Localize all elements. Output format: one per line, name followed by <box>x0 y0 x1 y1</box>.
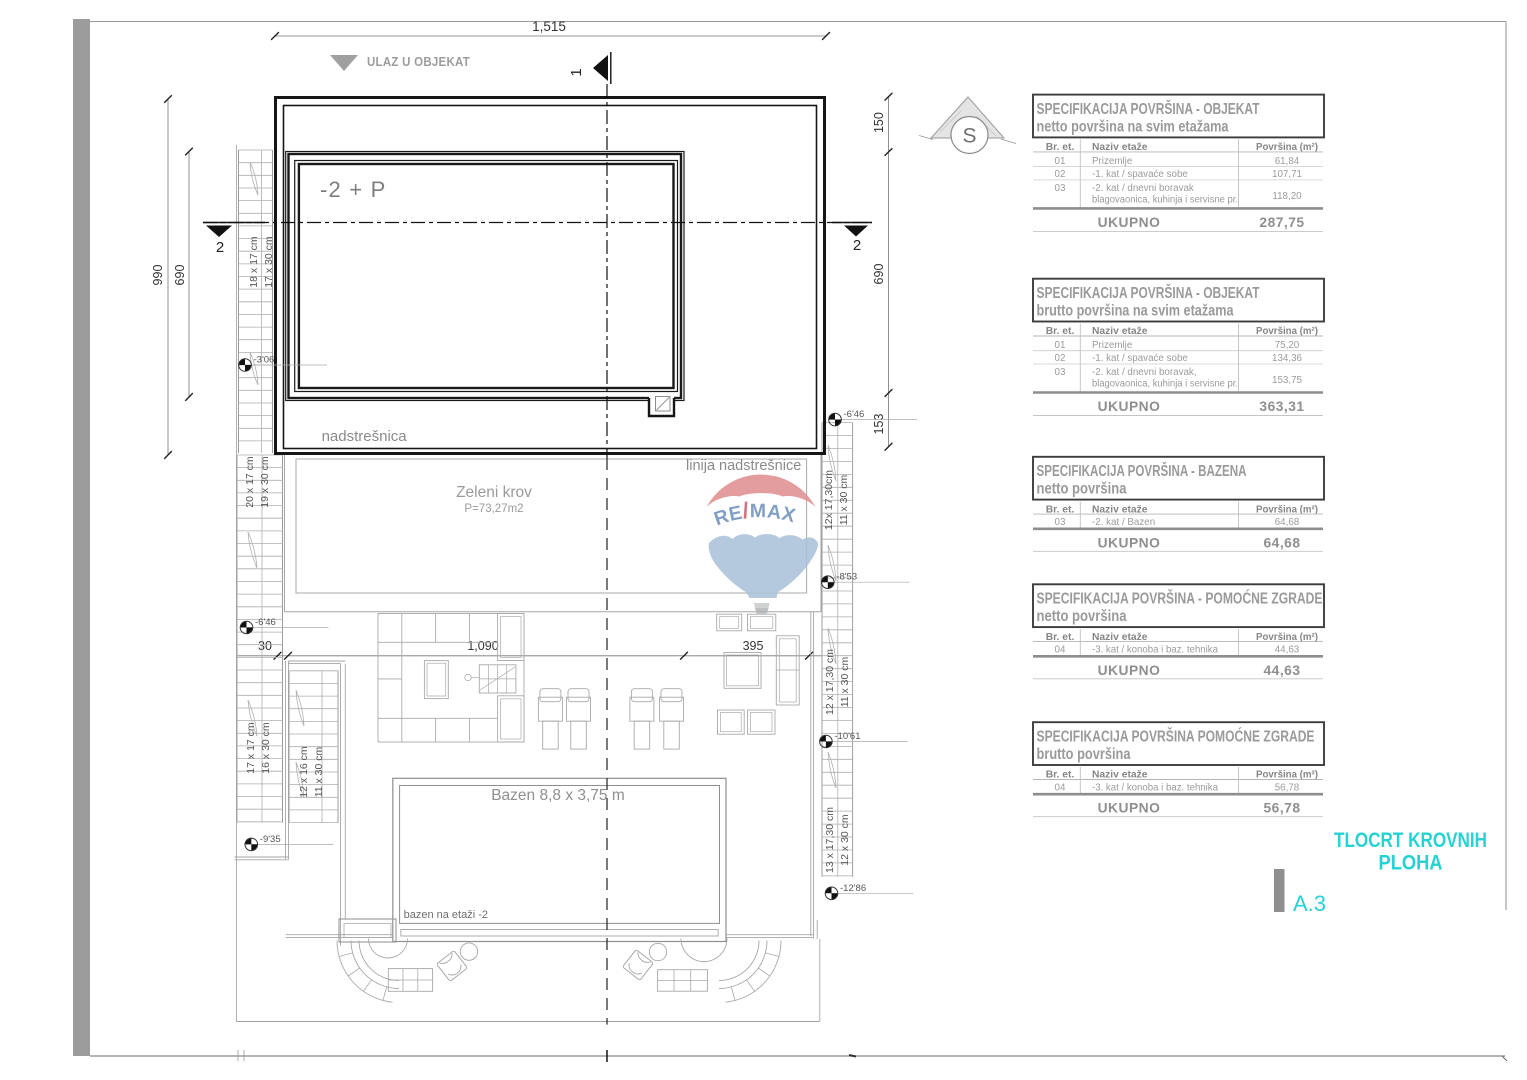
svg-text:-3'06: -3'06 <box>254 355 275 366</box>
svg-text:56,78: 56,78 <box>1275 783 1300 794</box>
svg-text:-9'35: -9'35 <box>260 834 281 845</box>
svg-text:44,63: 44,63 <box>1263 663 1300 678</box>
svg-text:blagovaonica, kuhinja i servis: blagovaonica, kuhinja i servisne pr. <box>1092 378 1238 389</box>
svg-text:17 x 17 cm: 17 x 17 cm <box>245 722 257 774</box>
svg-text:03: 03 <box>1055 367 1066 378</box>
svg-text:990: 990 <box>151 265 165 286</box>
svg-text:01: 01 <box>1055 156 1066 167</box>
svg-text:2: 2 <box>216 239 224 256</box>
svg-text:11 x 30 cm: 11 x 30 cm <box>838 474 850 525</box>
svg-text:2: 2 <box>853 237 861 254</box>
svg-text:01: 01 <box>1055 340 1066 351</box>
svg-text:netto površina: netto površina <box>1037 608 1127 625</box>
svg-text:-12'86: -12'86 <box>840 883 866 894</box>
svg-text:linija nadstrešnice: linija nadstrešnice <box>686 458 801 474</box>
svg-text:690: 690 <box>872 264 886 285</box>
svg-text:1: 1 <box>568 68 585 76</box>
svg-text:TLOCRT KROVNIH: TLOCRT KROVNIH <box>1334 829 1487 852</box>
svg-text:11 x 30 cm: 11 x 30 cm <box>313 746 325 797</box>
svg-text:1,090: 1,090 <box>467 639 498 653</box>
svg-text:56,78: 56,78 <box>1263 801 1300 816</box>
svg-text:netto površina: netto površina <box>1037 481 1127 498</box>
svg-text:-2. kat / Bazen: -2. kat / Bazen <box>1092 517 1155 528</box>
svg-text:12 x 16 cm: 12 x 16 cm <box>298 746 310 798</box>
svg-text:blagovaonica, kuhinja i servis: blagovaonica, kuhinja i servisne pr. <box>1092 194 1238 205</box>
svg-text:A.3: A.3 <box>1293 891 1326 916</box>
svg-text:-8'53: -8'53 <box>836 572 857 583</box>
svg-text:PLOHA: PLOHA <box>1379 852 1443 875</box>
svg-text:17 x 30 cm: 17 x 30 cm <box>263 236 275 288</box>
svg-text:12 x 17,30 cm: 12 x 17,30 cm <box>824 649 836 715</box>
svg-text:153,75: 153,75 <box>1272 375 1303 386</box>
svg-text:20 x 17 cm: 20 x 17 cm <box>244 456 256 508</box>
svg-text:-2. kat / dnevni boravak: -2. kat / dnevni boravak <box>1092 183 1194 194</box>
svg-text:44,63: 44,63 <box>1275 645 1300 656</box>
svg-text:nadstrešnica: nadstrešnica <box>322 428 408 445</box>
svg-text:P=73,27m2: P=73,27m2 <box>464 503 523 515</box>
svg-text:395: 395 <box>743 639 764 653</box>
svg-text:SPECIFIKACIJA POVRŠINA - POMOĆ: SPECIFIKACIJA POVRŠINA - POMOĆNE ZGRADE <box>1037 589 1323 608</box>
svg-text:02: 02 <box>1055 353 1066 364</box>
svg-text:04: 04 <box>1055 645 1066 656</box>
svg-text:UKUPNO: UKUPNO <box>1098 215 1161 230</box>
svg-text:03: 03 <box>1055 183 1066 194</box>
svg-text:-6'46: -6'46 <box>844 409 865 420</box>
svg-text:30: 30 <box>258 639 272 653</box>
svg-text:UKUPNO: UKUPNO <box>1098 399 1161 414</box>
svg-text:363,31: 363,31 <box>1259 399 1304 414</box>
svg-text:-10'61: -10'61 <box>834 731 860 742</box>
svg-text:brutto površina na svim etažam: brutto površina na svim etažama <box>1037 303 1234 320</box>
svg-text:UKUPNO: UKUPNO <box>1098 801 1161 816</box>
svg-text:04: 04 <box>1055 783 1066 794</box>
svg-text:Prizemlje: Prizemlje <box>1092 340 1133 351</box>
svg-text:134,36: 134,36 <box>1272 353 1303 364</box>
svg-text:SPECIFIKACIJA POVRŠINA POMOĆNE: SPECIFIKACIJA POVRŠINA POMOĆNE ZGRADE <box>1037 726 1315 745</box>
svg-text:12x 17,30cm: 12x 17,30cm <box>823 470 835 530</box>
svg-text:75,20: 75,20 <box>1275 340 1300 351</box>
svg-text:02: 02 <box>1055 169 1066 180</box>
svg-text:-2. kat / dnevni boravak,: -2. kat / dnevni boravak, <box>1092 367 1197 378</box>
svg-text:Bazen 8,8 x 3,75 m: Bazen 8,8 x 3,75 m <box>491 787 625 804</box>
svg-text:153: 153 <box>872 414 886 435</box>
svg-text:64,68: 64,68 <box>1275 517 1300 528</box>
svg-text:UKUPNO: UKUPNO <box>1098 663 1161 678</box>
svg-text:ULAZ U OBJEKAT: ULAZ U OBJEKAT <box>367 55 470 69</box>
svg-text:13 x 17,30 cm: 13 x 17,30 cm <box>824 807 836 873</box>
svg-text:150: 150 <box>872 112 886 133</box>
svg-text:11 x 30 cm: 11 x 30 cm <box>839 656 851 707</box>
svg-text:18 x 17 cm: 18 x 17 cm <box>248 236 260 288</box>
svg-text:107,71: 107,71 <box>1272 169 1302 180</box>
svg-text:Prizemlje: Prizemlje <box>1092 156 1133 167</box>
svg-text:287,75: 287,75 <box>1259 215 1304 230</box>
svg-text:-3. kat / konoba i baz. tehnik: -3. kat / konoba i baz. tehnika <box>1092 783 1219 794</box>
svg-text:-1. kat / spavaće sobe: -1. kat / spavaće sobe <box>1092 353 1188 364</box>
svg-text:03: 03 <box>1055 517 1066 528</box>
svg-text:SPECIFIKACIJA POVRŠINA - OBJEK: SPECIFIKACIJA POVRŠINA - OBJEKAT <box>1037 99 1260 118</box>
svg-text:64,68: 64,68 <box>1263 535 1300 550</box>
svg-text:UKUPNO: UKUPNO <box>1098 535 1161 550</box>
svg-text:-6'46: -6'46 <box>255 617 276 628</box>
svg-text:-2 + P: -2 + P <box>320 177 387 202</box>
svg-text:netto površina na svim etažama: netto površina na svim etažama <box>1037 118 1229 135</box>
svg-text:16 x 30 cm: 16 x 30 cm <box>260 722 272 774</box>
svg-text:1,515: 1,515 <box>532 19 566 34</box>
svg-text:S: S <box>962 125 976 148</box>
svg-text:Zeleni krov: Zeleni krov <box>456 484 532 501</box>
svg-text:-3. kat / konoba i baz. tehnik: -3. kat / konoba i baz. tehnika <box>1092 645 1219 656</box>
svg-text:bazen na etaži -2: bazen na etaži -2 <box>404 909 488 921</box>
svg-text:690: 690 <box>173 265 187 286</box>
svg-text:61,84: 61,84 <box>1275 156 1300 167</box>
svg-text:SPECIFIKACIJA POVRŠINA - OBJEK: SPECIFIKACIJA POVRŠINA - OBJEKAT <box>1037 283 1260 302</box>
svg-text:12 x 30 cm: 12 x 30 cm <box>839 814 851 866</box>
svg-text:-1. kat / spavaće sobe: -1. kat / spavaće sobe <box>1092 169 1188 180</box>
svg-text:19 x 30 cm: 19 x 30 cm <box>259 456 271 508</box>
svg-text:brutto površina: brutto površina <box>1037 746 1131 763</box>
svg-text:118,20: 118,20 <box>1272 191 1302 202</box>
svg-text:SPECIFIKACIJA POVRŠINA - BAZEN: SPECIFIKACIJA POVRŠINA - BAZENA <box>1037 461 1247 480</box>
